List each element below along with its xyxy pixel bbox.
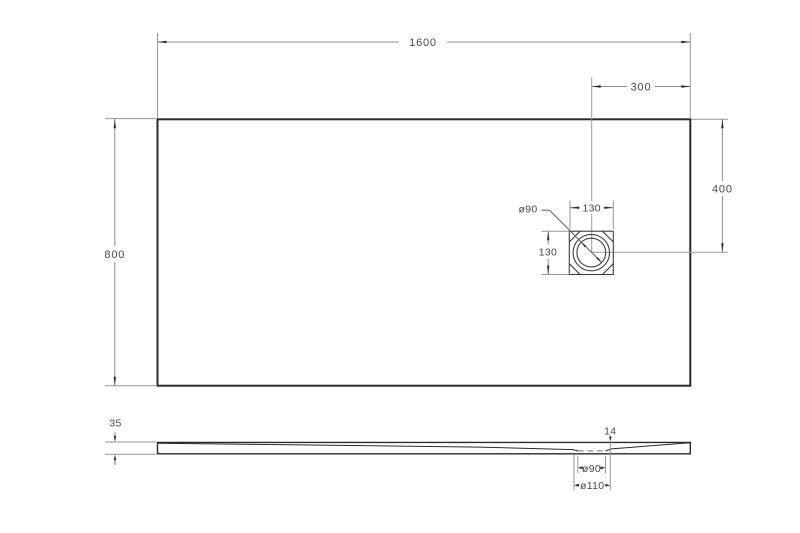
svg-text:130: 130 [582, 203, 600, 215]
svg-text:ø110: ø110 [580, 480, 604, 492]
svg-text:1600: 1600 [409, 37, 437, 49]
svg-text:130: 130 [539, 246, 557, 258]
svg-text:ø90: ø90 [582, 463, 601, 475]
svg-text:800: 800 [104, 249, 125, 261]
svg-text:300: 300 [631, 82, 652, 94]
svg-text:35: 35 [109, 418, 121, 430]
svg-text:ø90: ø90 [519, 204, 538, 216]
svg-text:400: 400 [712, 184, 733, 196]
